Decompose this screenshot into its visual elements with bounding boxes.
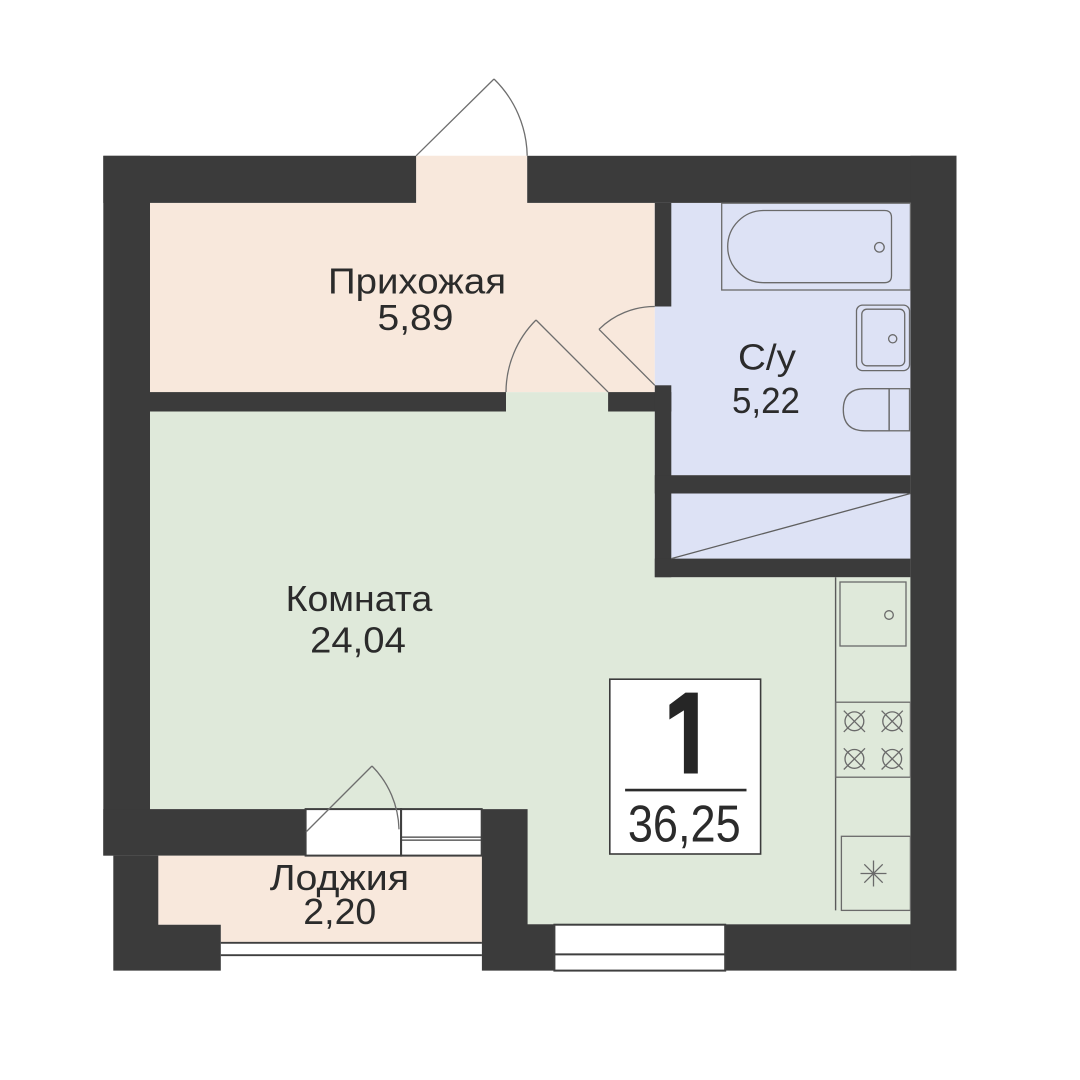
svg-text:5,22: 5,22	[732, 380, 800, 421]
svg-text:Комната: Комната	[286, 578, 434, 619]
svg-text:2,20: 2,20	[303, 891, 376, 932]
svg-text:5,89: 5,89	[378, 297, 454, 338]
svg-text:Прихожая: Прихожая	[328, 261, 506, 302]
svg-text:С/у: С/у	[738, 336, 796, 377]
svg-text:36,25: 36,25	[628, 796, 741, 854]
svg-text:24,04: 24,04	[310, 620, 406, 661]
